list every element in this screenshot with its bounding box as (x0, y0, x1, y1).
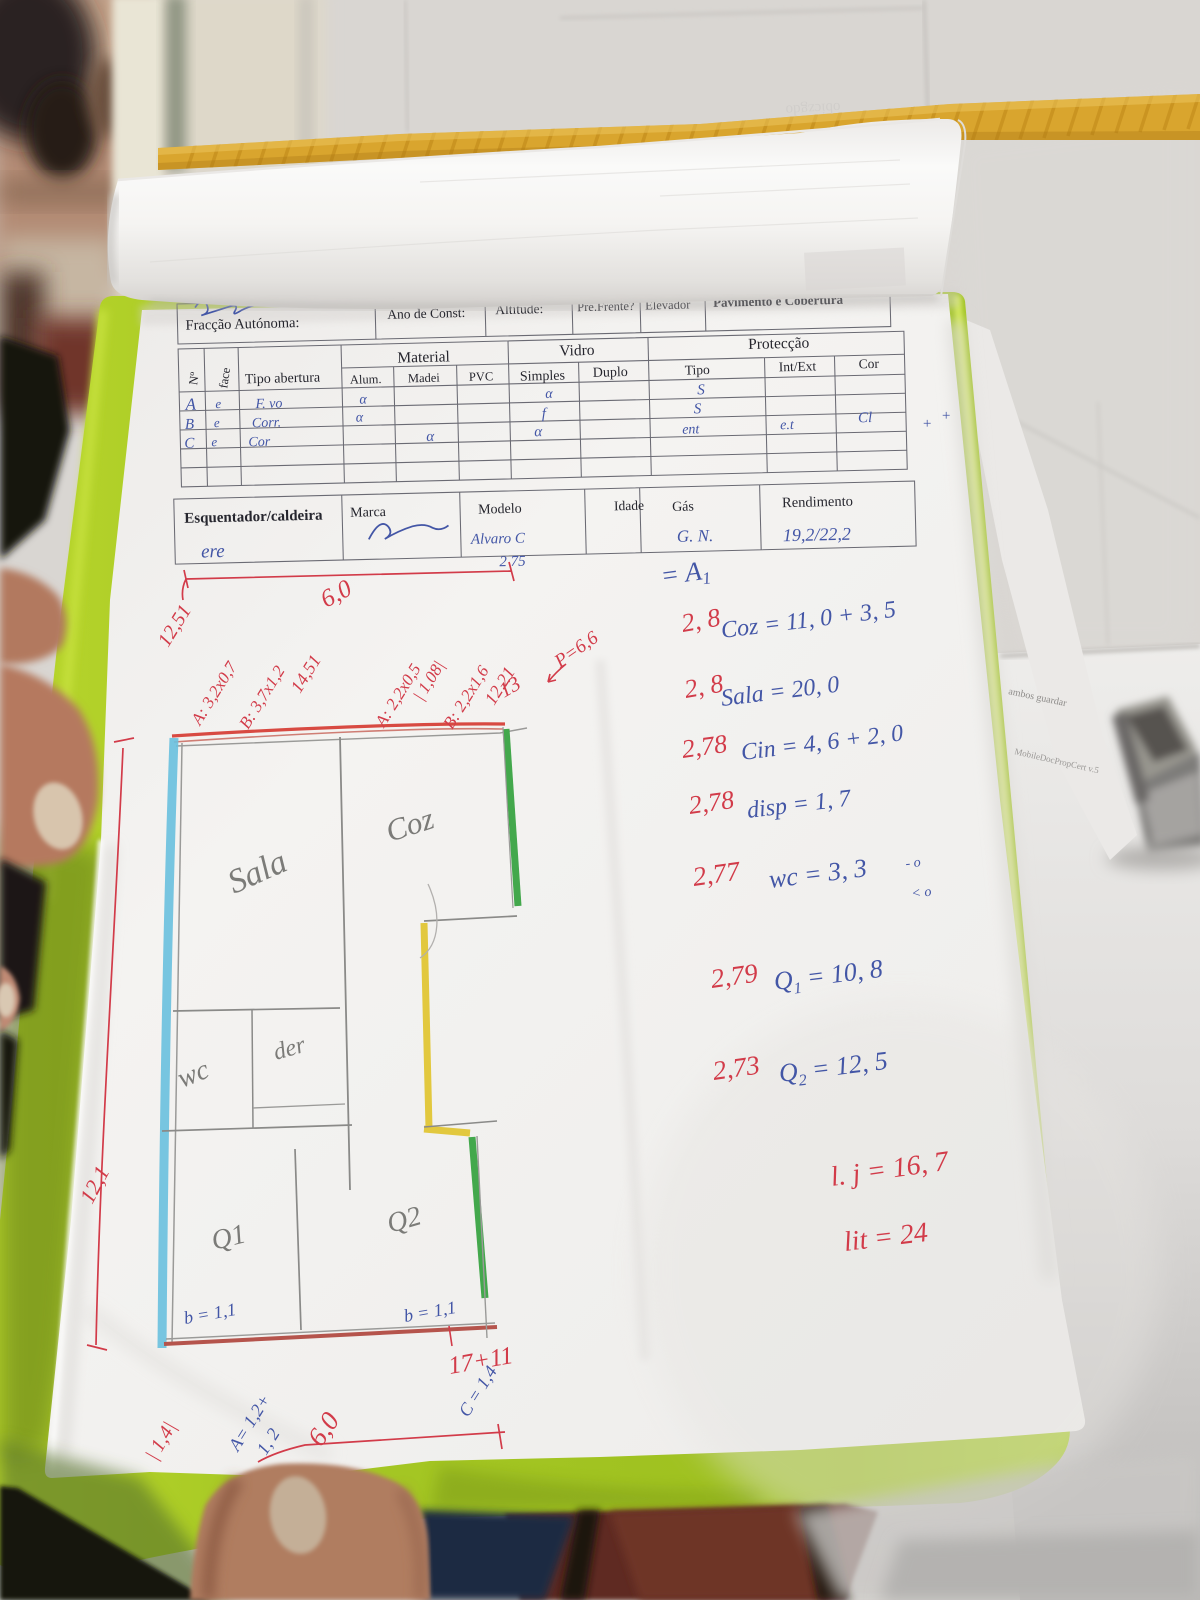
svg-text:Duplo: Duplo (593, 365, 628, 381)
svg-text:Madei: Madei (408, 371, 441, 386)
svg-text:G. N.: G. N. (677, 526, 714, 546)
svg-text:PVC: PVC (469, 369, 494, 384)
svg-text:+: + (922, 416, 932, 432)
svg-text:< o: < o (911, 885, 933, 902)
svg-text:B: B (185, 417, 195, 433)
svg-text:α: α (545, 387, 553, 402)
svg-text:+: + (941, 408, 951, 424)
svg-text:ent: ent (682, 422, 701, 437)
svg-text:Corr.: Corr. (252, 415, 282, 431)
svg-text:F. vo: F. vo (254, 396, 282, 412)
svg-text:e: e (211, 434, 217, 449)
svg-text:Cl: Cl (858, 410, 873, 426)
svg-text:Fracção Autónoma:: Fracção Autónoma: (185, 315, 299, 334)
svg-text:19,2/22,2: 19,2/22,2 (783, 524, 851, 546)
svg-text:S: S (694, 401, 702, 417)
svg-text:Tipo abertura: Tipo abertura (245, 371, 321, 388)
svg-text:- o: - o (905, 855, 922, 872)
svg-text:Gás: Gás (672, 499, 694, 515)
svg-text:α: α (356, 410, 364, 425)
svg-text:Vidro: Vidro (559, 342, 595, 360)
svg-text:A: A (184, 395, 196, 414)
svg-text:ere: ere (201, 541, 225, 563)
svg-text:Protecção: Protecção (748, 335, 810, 353)
svg-text:Material: Material (397, 348, 450, 366)
svg-text:Modelo: Modelo (478, 502, 522, 518)
svg-text:Idade: Idade (614, 498, 644, 514)
svg-text:Int/Ext: Int/Ext (779, 358, 817, 374)
svg-text:Simples: Simples (520, 369, 565, 385)
svg-text:e: e (215, 396, 221, 411)
svg-text:Cor: Cor (858, 356, 879, 372)
svg-text:Alum.: Alum. (350, 372, 382, 387)
svg-text:Cor: Cor (248, 435, 271, 451)
svg-text:e: e (214, 415, 220, 430)
svg-text:e.t: e.t (780, 418, 795, 433)
svg-text:C: C (184, 436, 195, 452)
svg-text:obiczgdo: obiczgdo (785, 99, 841, 118)
svg-text:Tipo: Tipo (685, 362, 711, 378)
svg-text:α: α (359, 392, 367, 407)
svg-text:2 75: 2 75 (499, 554, 526, 571)
svg-text:Nº: Nº (186, 371, 202, 386)
svg-text:Esquentador/caldeira: Esquentador/caldeira (184, 507, 323, 526)
svg-text:Marca: Marca (350, 505, 387, 521)
svg-text:Rendimento: Rendimento (782, 494, 853, 512)
svg-text:S: S (697, 382, 705, 398)
svg-text:Alvaro C: Alvaro C (470, 531, 526, 548)
